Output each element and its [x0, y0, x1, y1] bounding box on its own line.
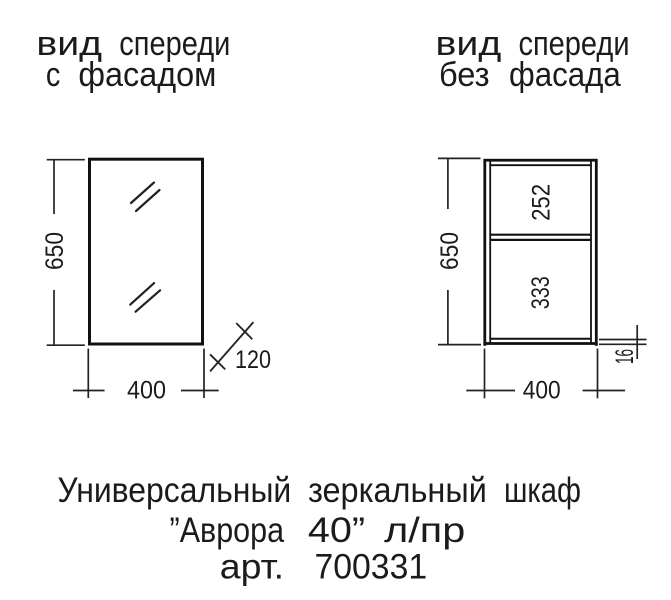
svg-text:650: 650 [41, 232, 69, 270]
svg-text:120: 120 [235, 346, 271, 374]
svg-text:без: без [439, 56, 490, 94]
svg-text:400: 400 [127, 377, 166, 405]
svg-text:333: 333 [527, 276, 555, 309]
svg-text:16: 16 [611, 349, 639, 364]
svg-text:252: 252 [528, 184, 556, 221]
svg-text:650: 650 [436, 232, 464, 270]
svg-text:400: 400 [523, 377, 561, 405]
svg-text:с: с [46, 56, 61, 94]
svg-text:л/пр: л/пр [384, 511, 465, 550]
svg-text:Универсальный: Универсальный [57, 471, 291, 510]
svg-text:”Аврора: ”Аврора [170, 511, 285, 550]
svg-text:шкаф: шкаф [504, 471, 581, 510]
svg-text:фасада: фасада [509, 56, 621, 94]
svg-text:зеркальный: зеркальный [308, 471, 487, 510]
svg-text:700331: 700331 [314, 548, 427, 587]
svg-text:40”: 40” [308, 511, 365, 550]
svg-text:арт.: арт. [220, 548, 284, 587]
svg-text:фасадом: фасадом [78, 56, 216, 94]
